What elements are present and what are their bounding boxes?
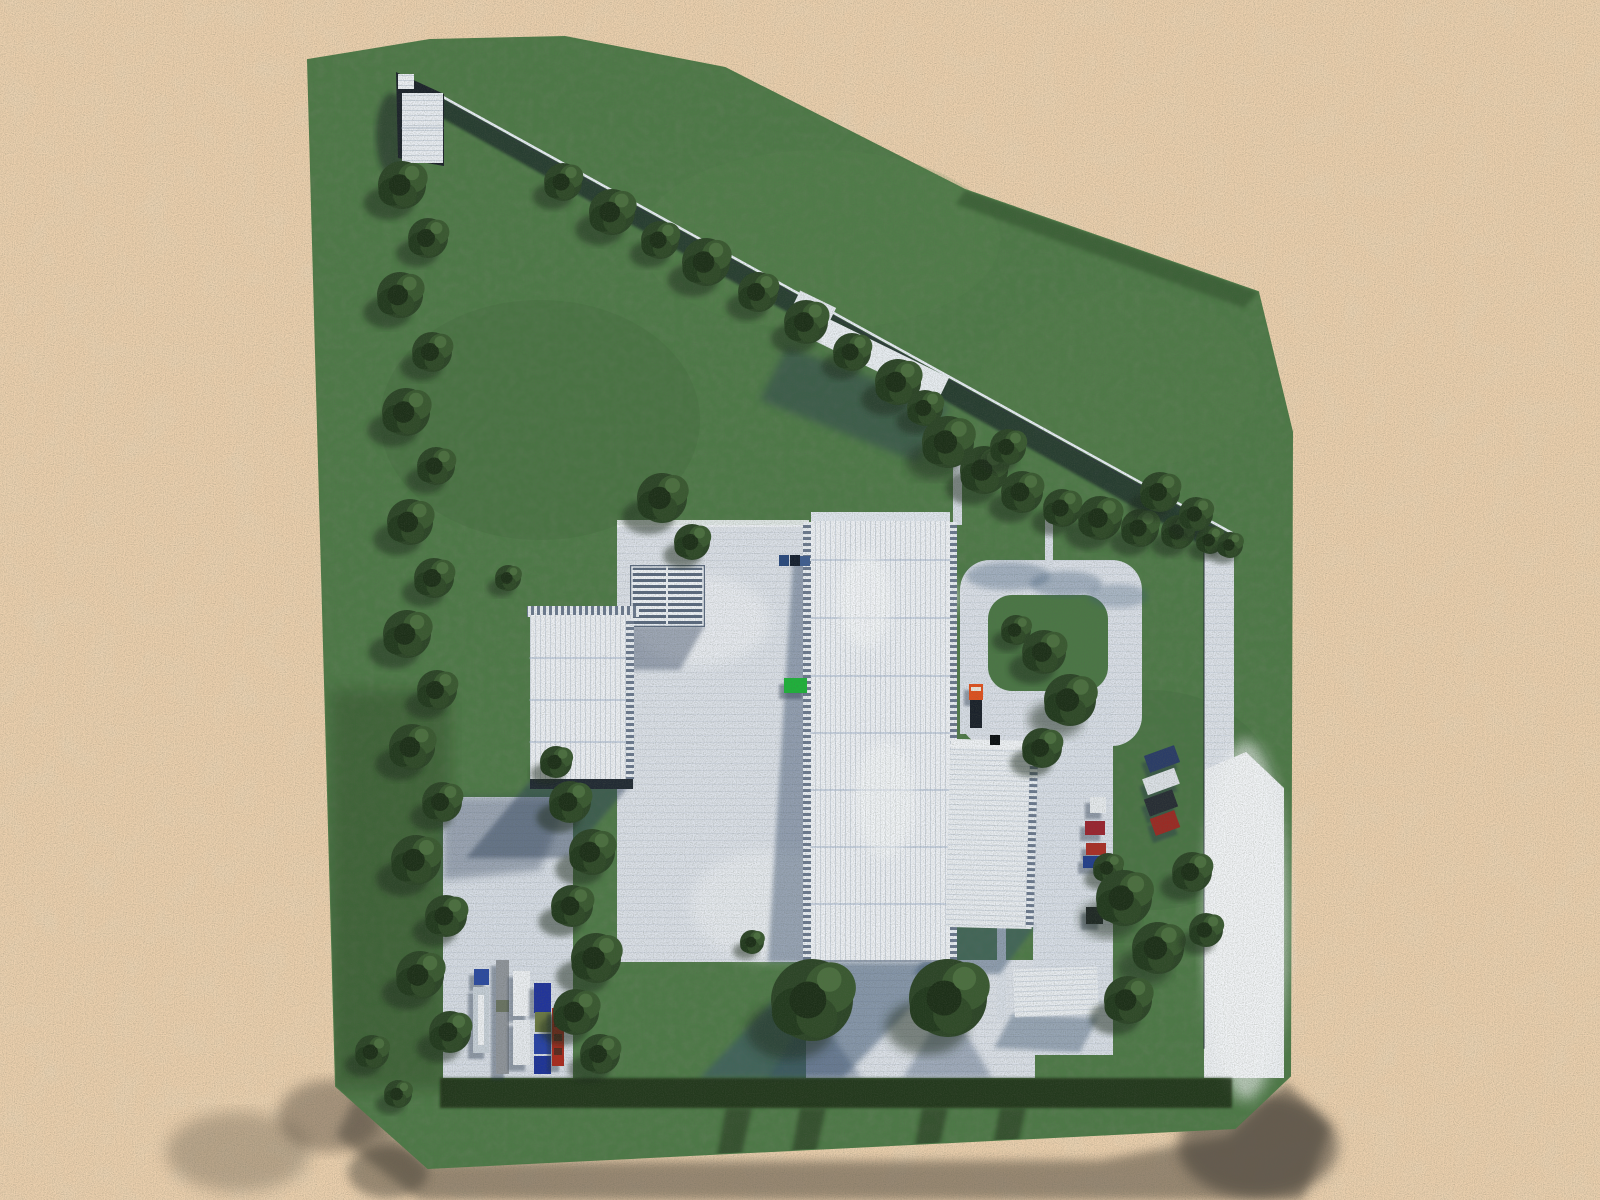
yard-tanker-detail: [478, 995, 484, 1045]
left-building-east-serration: [626, 619, 634, 779]
white-trailer: [508, 971, 530, 1022]
roof-bright-patch: [855, 742, 915, 858]
annex-door: [990, 735, 1000, 745]
aerial-site-plan-render: [0, 0, 1600, 1200]
pallet-stack: [800, 556, 810, 566]
main-building-north-strip: [811, 512, 950, 521]
gatehouse-cap-roof: [398, 74, 414, 89]
south-shed-roof: [1013, 967, 1099, 1018]
pallet-stack: [790, 555, 800, 566]
site-plan-canvas: [0, 0, 1600, 1200]
yard-divider-wall: [491, 960, 509, 1080]
main-building-west-serration: [803, 522, 812, 962]
loop-road-dapple-shadow: [1088, 584, 1148, 608]
red-crane-slot: [554, 1048, 562, 1055]
pallet-stack: [779, 555, 789, 566]
orange-truck-cab-top: [971, 687, 981, 691]
white-trailer: [508, 1020, 530, 1071]
orange-truck-trailer: [970, 700, 982, 728]
hedge-shadow-band: [440, 1078, 1232, 1108]
roof-bright-patch: [839, 552, 891, 648]
south-shed-shadow: [994, 1014, 1098, 1052]
yard-divider-gap: [496, 1000, 509, 1012]
